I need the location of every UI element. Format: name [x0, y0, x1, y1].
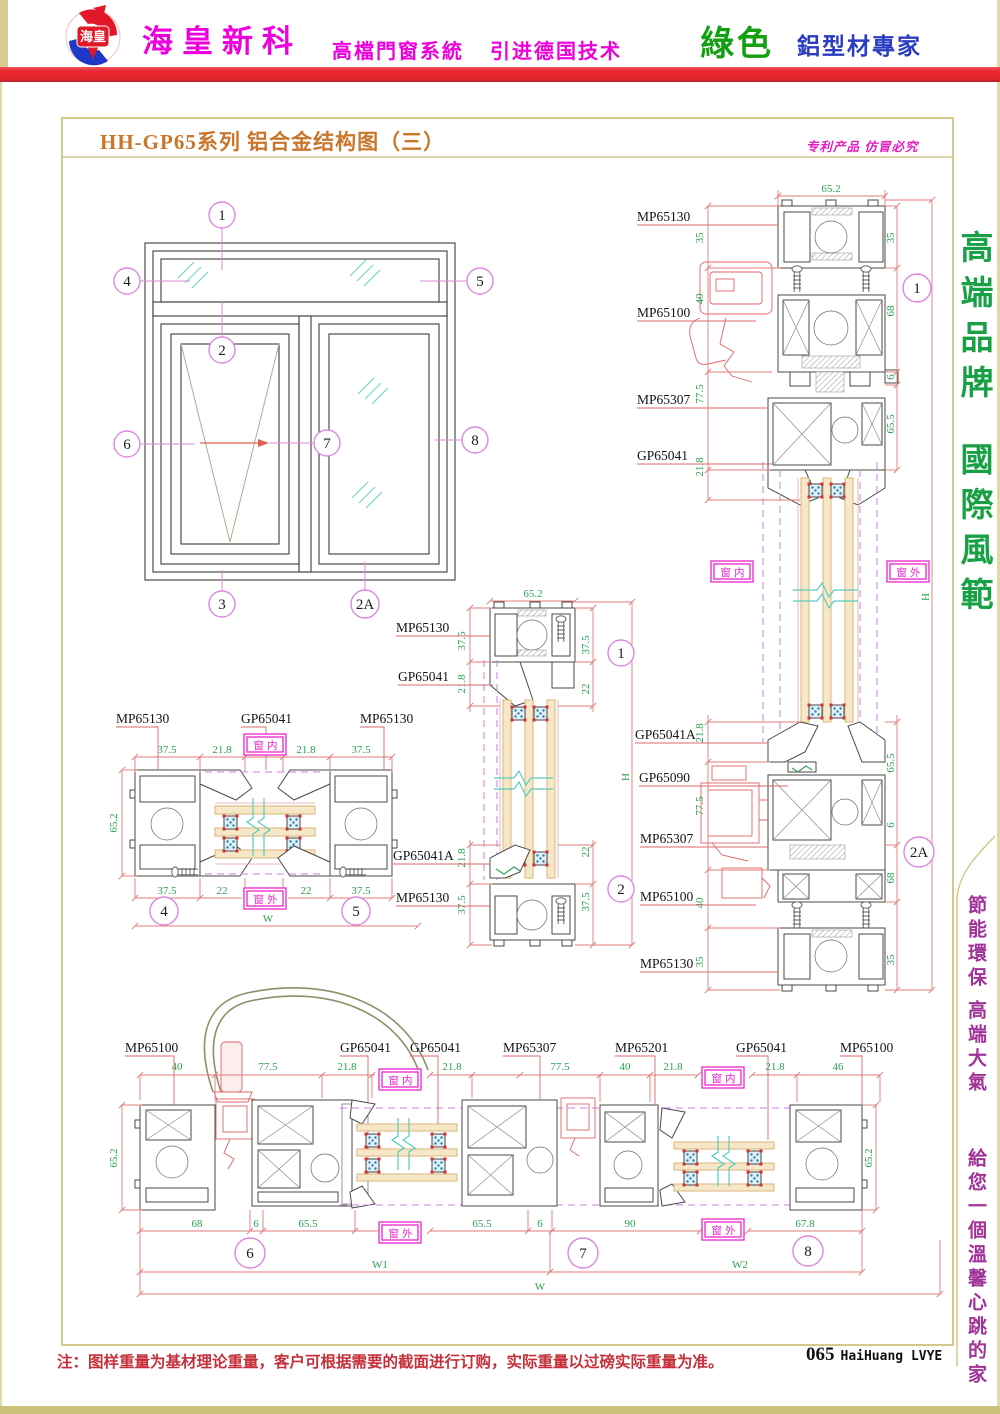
dim: 40 [620, 1061, 632, 1073]
profile-label: GP65041A [393, 848, 454, 863]
anno-inside-box: 窗内 [379, 1069, 421, 1090]
dim: 40 [694, 293, 706, 305]
svg-text:窗内: 窗内 [254, 739, 281, 752]
callout-2a: 2A [356, 597, 375, 613]
sec-45-profiles [130, 770, 397, 877]
dim: 21.8 [337, 1061, 357, 1073]
dim: 21.8 [456, 674, 468, 694]
anno-outside-box: 窗外 [887, 561, 929, 582]
dim: 37.5 [157, 744, 177, 756]
dim: 6 [885, 374, 897, 380]
profile-label: MP65130 [360, 711, 414, 726]
dim-w: W [263, 913, 274, 925]
dim: 21.8 [694, 457, 706, 477]
section-right: 65.2 35 40 77.5 21.8 21.8 77.5 40 35 35 … [635, 183, 935, 993]
dim: 68 [885, 305, 897, 317]
anno-outside-box-2: 窗外 [702, 1219, 744, 1240]
anno-outside-box: 窗外 [379, 1222, 421, 1243]
profile-label: MP65100 [125, 1040, 179, 1055]
anno-inside-box: 窗内 [711, 561, 753, 582]
dim: 6 [537, 1218, 543, 1230]
profile-label: GP65041 [410, 1040, 461, 1055]
profile-label: MP65130 [637, 209, 691, 224]
dim-w2: W2 [732, 1259, 748, 1271]
dim: 90 [625, 1218, 637, 1230]
elevation-view: 1 4 5 2 6 7 8 3 2A [114, 202, 493, 618]
dim: 22 [580, 684, 592, 695]
sec-right-labels: MP65130 MP65100 MP65307 GP65041 GP65041A… [635, 209, 788, 972]
dim: 35 [694, 232, 706, 244]
profile-label: MP65130 [640, 956, 694, 971]
dim: 46 [833, 1061, 845, 1073]
dim: 21.8 [663, 1061, 683, 1073]
svg-text:窗内: 窗内 [389, 1074, 416, 1087]
svg-text:窗外: 窗外 [389, 1227, 416, 1240]
dim: 65.5 [298, 1218, 318, 1230]
callout-1: 1 [617, 646, 625, 662]
profile-label: GP65041A [635, 727, 696, 742]
profile-label: MP65201 [615, 1040, 668, 1055]
callout-7: 7 [579, 1246, 587, 1262]
sec-bottom-profiles [135, 988, 867, 1210]
dim: 65.5 [472, 1218, 492, 1230]
profile-label: MP65100 [637, 305, 691, 320]
dim: 68 [192, 1218, 204, 1230]
callout-8: 8 [471, 433, 479, 449]
callout-4: 4 [160, 904, 168, 920]
dim: 21.8 [212, 744, 232, 756]
callout-5: 5 [476, 274, 484, 290]
svg-text:窗外: 窗外 [712, 1224, 739, 1237]
profile-label: GP65041 [241, 711, 292, 726]
dim: 37.5 [351, 885, 371, 897]
profile-label: GP65090 [639, 770, 690, 785]
dim: 65.5 [885, 753, 897, 773]
profile-label: MP65130 [396, 620, 450, 635]
dim: 37.5 [157, 885, 177, 897]
profile-label: MP65130 [116, 711, 170, 726]
svg-text:窗内: 窗内 [721, 566, 748, 579]
profile-label: MP65100 [640, 889, 694, 904]
dim: 65.2 [863, 1148, 875, 1167]
profile-label: MP65130 [396, 890, 450, 905]
svg-text:窗内: 窗内 [712, 1072, 739, 1085]
dim: 21.8 [694, 723, 706, 743]
section-bottom: 40 77.5 21.8 21.8 77.5 40 21.8 21.8 46 6… [108, 988, 943, 1297]
dim-h: H [920, 593, 932, 601]
dim: 37.5 [351, 744, 371, 756]
dim: 65.2 [108, 813, 120, 832]
dim: 22 [580, 847, 592, 858]
dim: 37.5 [456, 895, 468, 915]
callout-4: 4 [123, 274, 131, 290]
profile-label: GP65041 [340, 1040, 391, 1055]
sec-center-labels: MP65130 GP65041 GP65041A MP65130 [393, 620, 493, 906]
dim: 22 [301, 885, 312, 897]
dim: 40 [694, 897, 706, 909]
callout-2: 2 [617, 882, 625, 898]
dim: 67.8 [795, 1218, 815, 1230]
profile-label: MP65100 [840, 1040, 894, 1055]
callout-6: 6 [123, 437, 131, 453]
dim: 21.8 [456, 848, 468, 868]
callout-1: 1 [218, 208, 226, 224]
dim: 35 [694, 956, 706, 968]
dim: 77.5 [258, 1061, 278, 1073]
profile-label: GP65041 [637, 448, 688, 463]
dim: 77.5 [694, 384, 706, 404]
dim: 65.5 [885, 414, 897, 434]
profile-label: GP65041 [398, 669, 449, 684]
anno-inside-box: 窗内 [244, 734, 286, 755]
callout-1: 1 [913, 281, 921, 297]
dim-w1: W1 [372, 1259, 388, 1271]
dim: 37.5 [580, 635, 592, 655]
dim: 40 [172, 1061, 184, 1073]
dim: 65.2 [821, 183, 840, 195]
dim: 35 [885, 954, 897, 966]
section-45: 37.5 21.8 21.8 37.5 37.5 22 22 37.5 65.2… [108, 711, 421, 929]
dim: 21.8 [442, 1061, 462, 1073]
svg-text:窗外: 窗外 [897, 566, 924, 579]
anno-outside-box: 窗外 [244, 888, 286, 909]
dim: 37.5 [456, 631, 468, 651]
dim: 77.5 [550, 1061, 570, 1073]
anno-inside-box-2: 窗内 [702, 1067, 744, 1088]
callout-3: 3 [218, 597, 226, 613]
sec-right-profiles [690, 200, 898, 991]
dim: 35 [885, 232, 897, 244]
dim-w: W [535, 1281, 546, 1293]
drawing-sheet: 1 4 5 2 6 7 8 3 2A [0, 0, 1000, 1414]
dim: 65.2 [108, 1148, 120, 1167]
callout-6: 6 [246, 1246, 254, 1262]
dim: 22 [217, 885, 228, 897]
callout-8: 8 [804, 1244, 812, 1260]
profile-label: MP65307 [503, 1040, 557, 1055]
callout-2a: 2A [910, 845, 929, 861]
dim: 65.2 [523, 588, 542, 600]
section-center: 65.2 37.5 21.8 21.8 37.5 37.5 22 22 37.5… [393, 588, 635, 948]
dim: 21.8 [296, 744, 316, 756]
dim: 6 [253, 1218, 259, 1230]
callout-7: 7 [323, 436, 331, 452]
hardware-top [690, 262, 772, 382]
dim-h: H [620, 773, 632, 781]
sec-center-profiles [484, 602, 575, 946]
dim: 77.5 [694, 796, 706, 816]
profile-label: GP65041 [736, 1040, 787, 1055]
profile-label: MP65307 [640, 831, 694, 846]
dim: 68 [885, 872, 897, 884]
callout-2: 2 [218, 343, 226, 359]
profile-label: MP65307 [637, 392, 691, 407]
dim: 6 [885, 822, 897, 828]
dim: 37.5 [580, 892, 592, 912]
svg-text:窗外: 窗外 [254, 893, 281, 906]
callout-5: 5 [352, 904, 360, 920]
